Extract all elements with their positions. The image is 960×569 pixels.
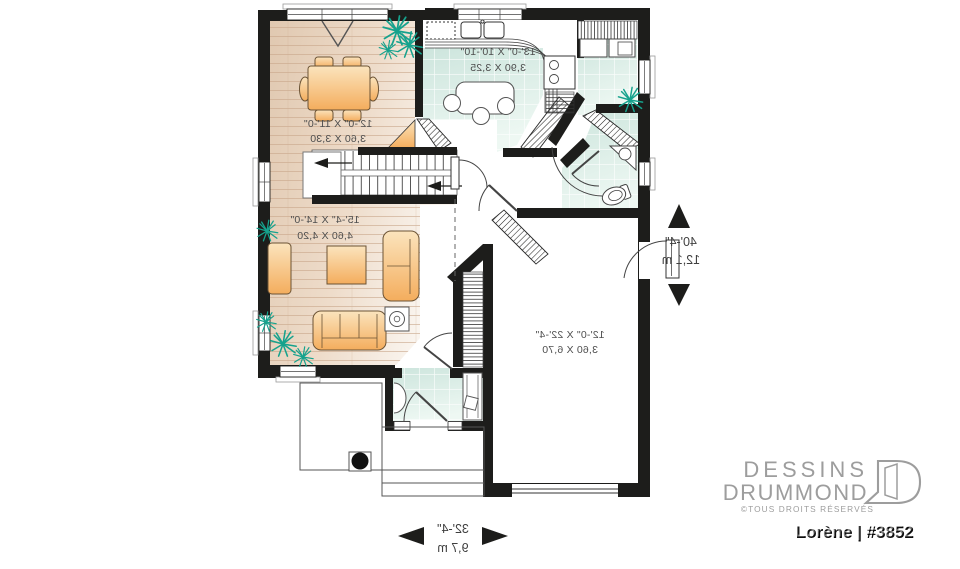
living-dimensions-metric: 4,60 X 4,20 <box>297 230 353 242</box>
end-table-with-lamp <box>385 307 409 331</box>
plan-title-highlight: Lorène | #3852 <box>794 522 912 541</box>
porch-column <box>352 453 369 470</box>
kitchen-dimensions-imperial: 13'-0" X 10'-10" <box>460 46 535 58</box>
arrow-right-icon <box>482 527 508 545</box>
kitchen-chair <box>444 95 461 112</box>
depth-metric: 12,1 m <box>662 253 700 267</box>
porch-step <box>382 483 484 496</box>
living-dimensions-imperial: 15'-4" X 14'-0" <box>290 214 359 226</box>
entry-sidelight <box>394 422 410 431</box>
dining-dimensions-imperial: 12'-0" X 11'-0" <box>304 118 373 130</box>
hall-closet <box>463 272 483 367</box>
kitchen-chair <box>473 108 490 125</box>
loveseat <box>383 231 419 301</box>
stair-landing <box>303 152 341 198</box>
washer <box>580 39 607 57</box>
company-name-line2: DRUMMOND <box>723 480 868 505</box>
garage-door <box>512 484 618 498</box>
garage-entry-door <box>479 185 517 211</box>
stove <box>544 56 575 89</box>
drummond-d-logo-icon <box>866 461 920 503</box>
rights-notice: ©TOUS DROITS RÉSERVÉS <box>741 504 874 514</box>
dining-dimensions-metric: 3,60 X 3,30 <box>310 133 366 145</box>
dining-table <box>308 66 370 110</box>
porch-step <box>382 470 484 483</box>
stair-door <box>451 157 487 189</box>
overall-depth-dimension: 40'-4" 12,1 m <box>662 204 700 306</box>
brand-logo: DESSINS DRUMMOND ©TOUS DROITS RÉSERVÉS <box>723 457 920 514</box>
kitchen-chair <box>498 98 515 115</box>
overall-width-dimension: 32'-4" 9,7 m <box>398 522 508 555</box>
depth-imperial: 40'-4" <box>665 235 697 249</box>
width-imperial: 32'-4" <box>437 522 469 536</box>
hall-entry-door <box>424 333 452 369</box>
kitchen-cabinet-front <box>546 92 574 113</box>
garage-dimensions-imperial: 12'-0" X 22'-4" <box>535 329 604 341</box>
arrow-down-icon <box>668 284 690 306</box>
entry-bench <box>463 373 482 420</box>
arrow-up-icon <box>668 204 690 228</box>
staircase <box>303 150 462 198</box>
entry-sidelight <box>448 422 462 431</box>
company-name-line1: DESSINS <box>743 457 868 482</box>
coffee-table <box>327 246 366 284</box>
width-metric: 9,7 m <box>437 541 468 555</box>
garage-dimensions-metric: 3,60 X 6,70 <box>542 344 598 356</box>
laundry-fixtures <box>578 21 637 57</box>
dishwasher <box>427 22 455 39</box>
floor-plan-drawing: 12'-0" X 11'-0" 3,60 X 3,30 13'-0" X 10'… <box>0 0 960 569</box>
sofa <box>313 311 386 350</box>
arrow-left-icon <box>398 527 424 545</box>
floor-plan-page: 12'-0" X 11'-0" 3,60 X 3,30 13'-0" X 10'… <box>0 0 960 569</box>
kitchen-dimensions-metric: 3,90 X 3,25 <box>470 62 526 74</box>
plan-title: Lorène | #3852 Lorène | #3852 <box>794 522 914 542</box>
armchair <box>268 243 291 294</box>
